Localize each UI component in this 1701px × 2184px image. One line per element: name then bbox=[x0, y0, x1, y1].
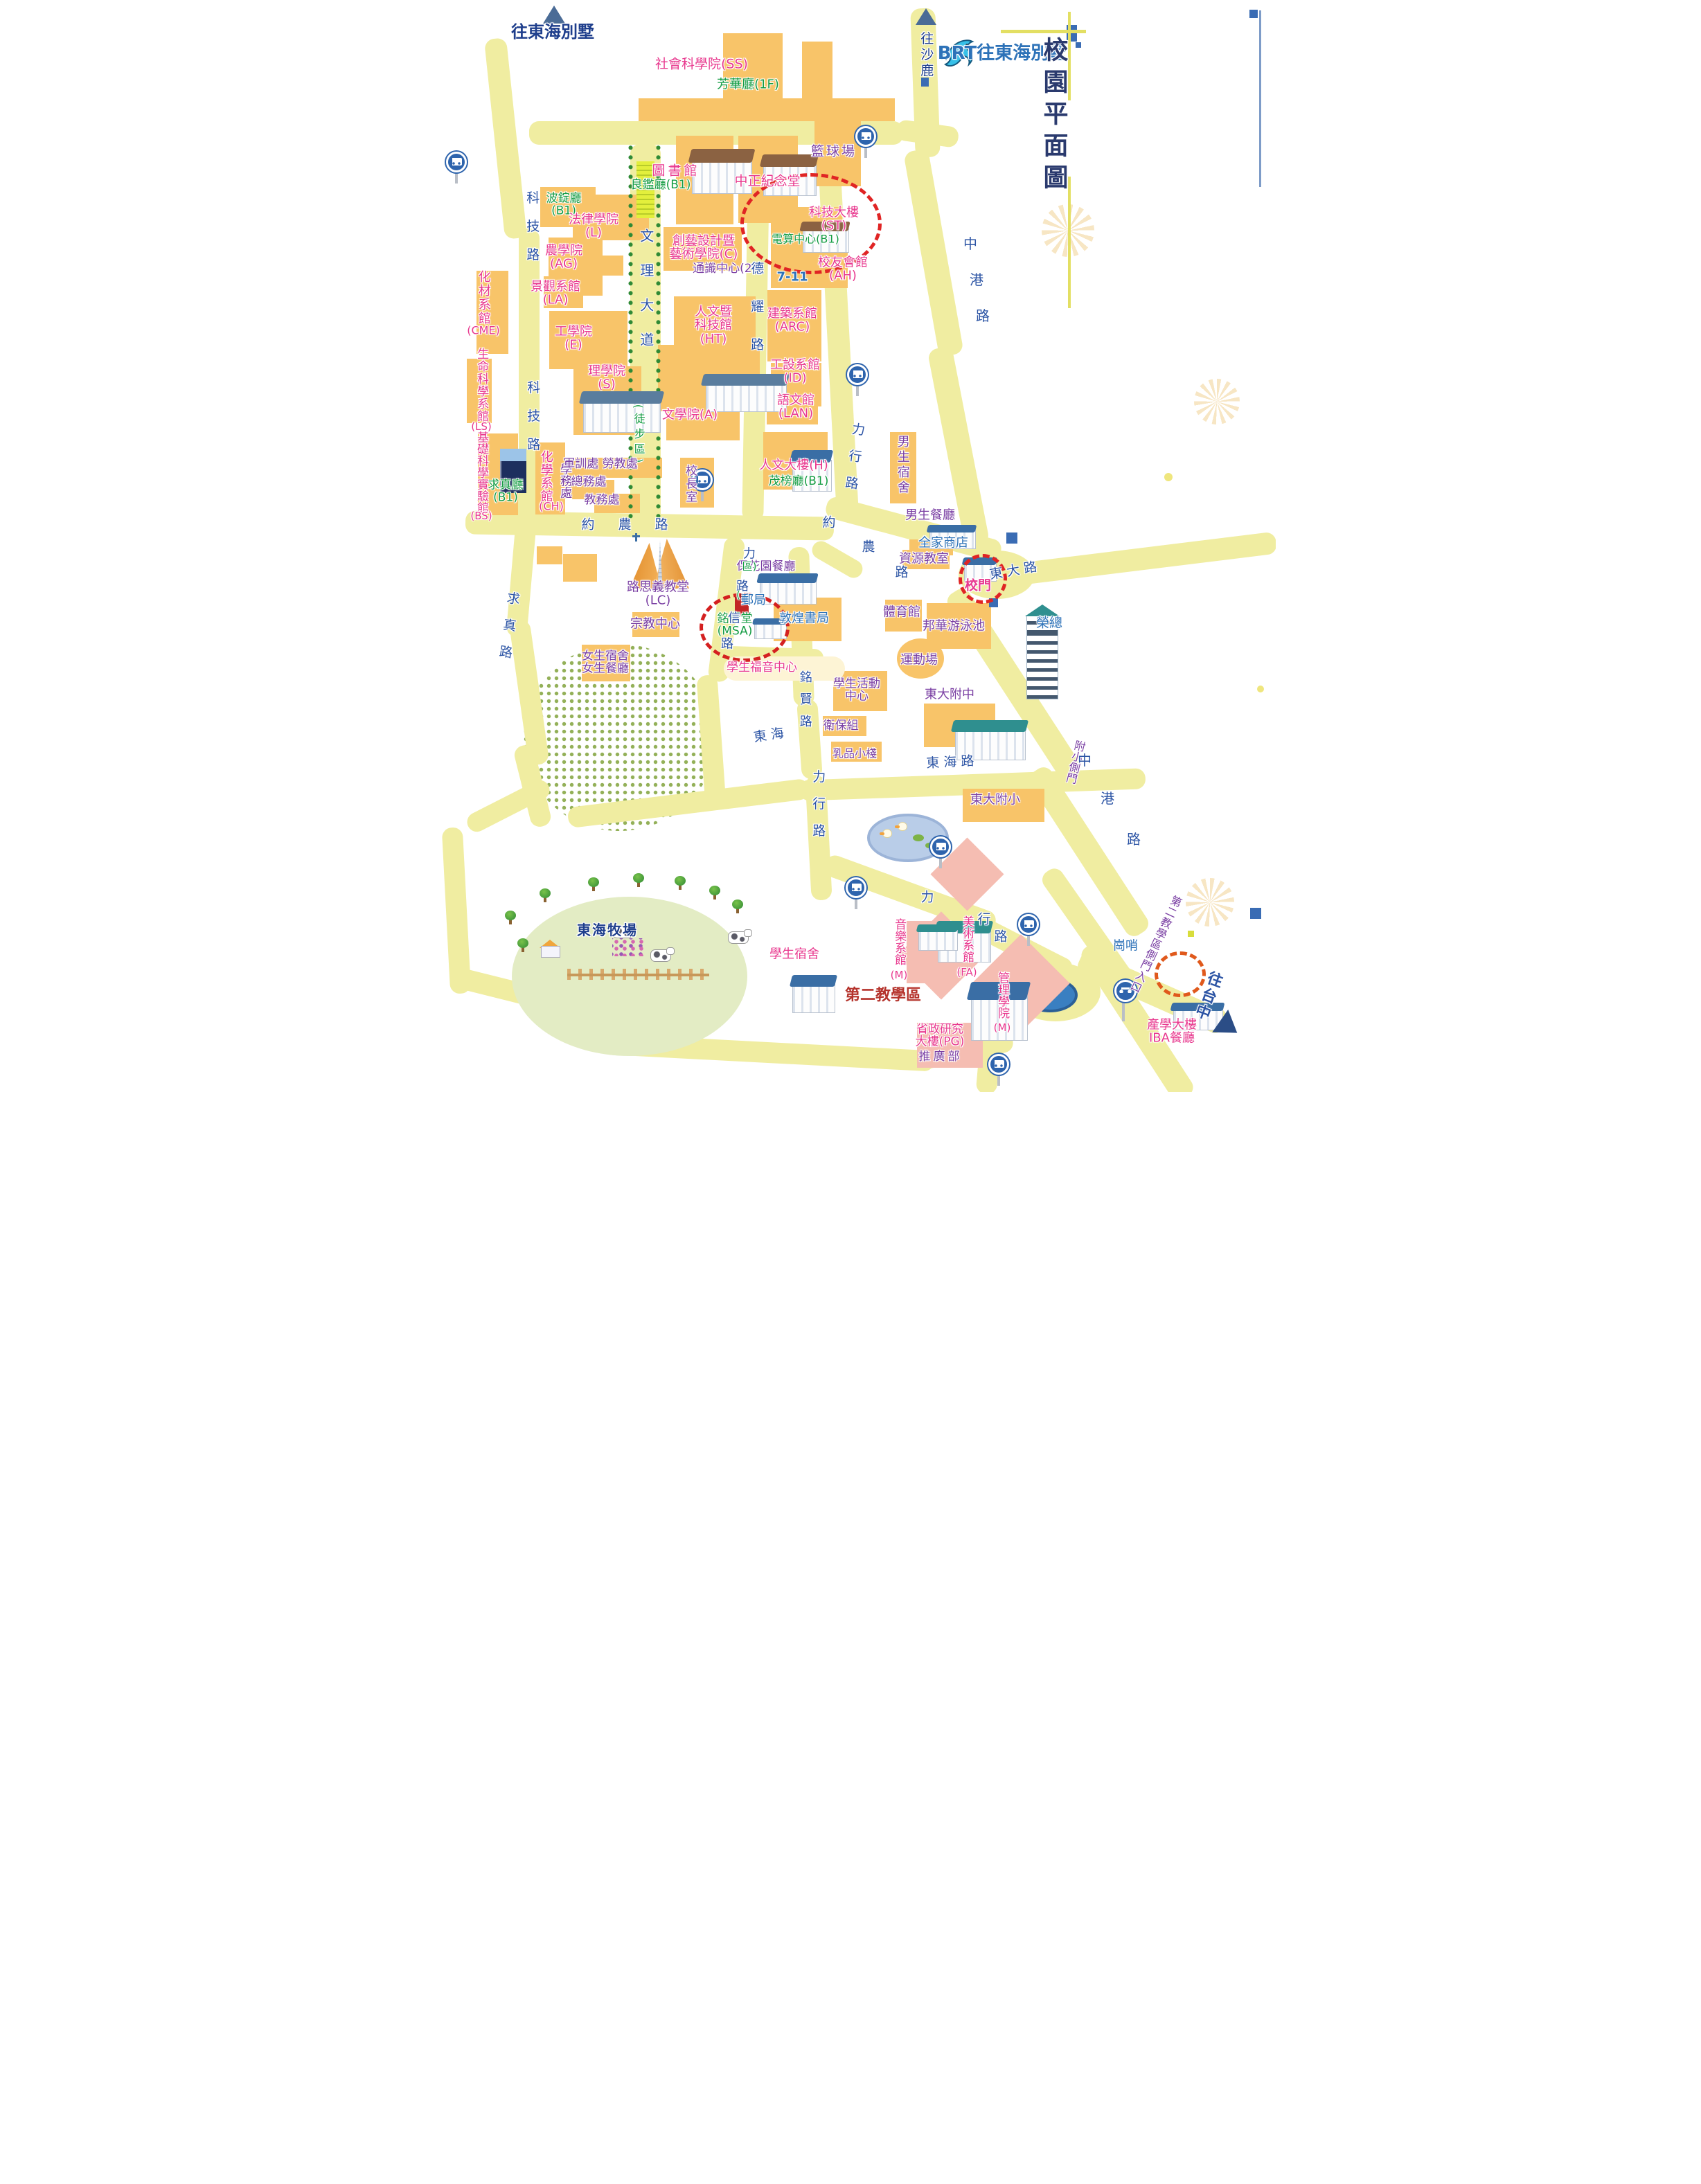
architecture-dept: 建築系館 (ARC) bbox=[767, 307, 817, 334]
wenli-avenue: 文理大道 bbox=[638, 229, 653, 367]
farm-tree bbox=[505, 911, 516, 924]
zhonggang-top-3: 路 bbox=[976, 309, 990, 324]
seven-eleven: 7-11 bbox=[776, 270, 808, 283]
sports-field: 運動場 bbox=[900, 653, 938, 666]
science-tech-bldg: 科技大樓 (ST) bbox=[809, 206, 859, 233]
ch-code: (CH) bbox=[539, 500, 564, 512]
decorative-square bbox=[1250, 908, 1261, 919]
campus-map: 往東海別墅社會科學院(SS)芳華廳(1F)圖書館良鑑廳(B1)中正紀念堂籃球場波… bbox=[425, 0, 1276, 1092]
provincial-research-bldg: 省政研究 大樓(PG) bbox=[916, 1023, 965, 1049]
zhonggang-top-2: 港 bbox=[970, 273, 983, 288]
decorative-square bbox=[1259, 10, 1261, 187]
farm-tree bbox=[709, 886, 720, 899]
baohuayuan-bldg-roof bbox=[756, 573, 819, 583]
farm-tree bbox=[633, 873, 644, 887]
mingxian-rd: 銘賢路 bbox=[798, 670, 811, 737]
lixing-se-2: 行 bbox=[977, 913, 990, 927]
farm-tree bbox=[517, 938, 528, 952]
basic-science-lab: 基礎科學實驗館 bbox=[475, 431, 488, 514]
gymnasium: 體育館 bbox=[883, 605, 920, 618]
yuenong-rd: 約 農 路 bbox=[581, 518, 677, 532]
management-code: (M) bbox=[994, 1022, 1011, 1033]
highlight-side-gate-entrance bbox=[1155, 951, 1206, 997]
bus-stop-sign bbox=[930, 836, 951, 857]
lily-pad bbox=[913, 834, 924, 841]
president-office: 校長室 bbox=[684, 465, 696, 504]
veterans-hospital: 榮總 bbox=[1036, 616, 1062, 631]
guard-post: 崗哨 bbox=[1113, 939, 1138, 952]
male-cafeteria: 男生餐廳 bbox=[905, 508, 955, 521]
keji-rd-north: 科技路 bbox=[525, 191, 540, 276]
gospel-center: 學生福音中心 bbox=[727, 661, 797, 674]
student-dorm-bldg bbox=[792, 975, 834, 1013]
fine-arts-dept: 美術系館 bbox=[961, 915, 973, 963]
cme-dept: 化材系館 bbox=[477, 270, 490, 325]
cks-memorial-bldg-roof bbox=[760, 154, 819, 167]
alumni-house: 校友會館 (AH) bbox=[818, 256, 868, 283]
keji-rd-south: 科技路 bbox=[526, 381, 540, 466]
bus-stop-icon bbox=[448, 152, 465, 185]
bus-stop-sign bbox=[846, 877, 866, 898]
school-gate: 校門 bbox=[965, 579, 991, 593]
decorative-square bbox=[1188, 931, 1194, 937]
farm-tree bbox=[588, 877, 599, 891]
donghai-rd-west: 東 海 bbox=[753, 726, 785, 744]
yuenong-diag-2: 農 bbox=[862, 540, 875, 555]
fine-arts-code: (FA) bbox=[956, 967, 977, 978]
dongda-elementary: 東大附小 bbox=[970, 793, 1020, 806]
student-dorm-south: 學生宿舍 bbox=[769, 947, 819, 960]
donghai-rd-east: 東 海 路 bbox=[926, 754, 974, 771]
bus-stop-icon bbox=[932, 836, 949, 870]
duck-icon bbox=[882, 829, 892, 838]
lixing-se-3: 路 bbox=[994, 930, 1007, 945]
bs-code: (BS) bbox=[470, 510, 492, 521]
to-shalu: 往沙鹿 bbox=[919, 32, 934, 80]
milk-stand: 乳品小棧 bbox=[832, 747, 877, 759]
dunhuang-bookstore: 敦煌書局 bbox=[779, 611, 829, 625]
health-care-group: 衛保組 bbox=[823, 719, 859, 732]
lixing-rd-south: 力行路 bbox=[811, 770, 826, 851]
yuenong-diag-1: 約 bbox=[822, 516, 835, 530]
bus-stop-icon bbox=[1020, 914, 1037, 947]
farm-fence bbox=[567, 969, 709, 980]
military-labor-office: 軍訓處 勞教處 bbox=[563, 458, 637, 470]
dongda-hs-bldg-roof bbox=[951, 720, 1028, 732]
landscape-dept: 景觀系館 (LA) bbox=[531, 280, 580, 307]
resource-room: 資源教室 bbox=[899, 552, 949, 565]
building-block bbox=[602, 256, 623, 276]
fine-arts-bldg bbox=[918, 924, 956, 951]
science-college-bldg bbox=[583, 391, 659, 433]
creative-arts-college: 創藝設計暨 藝術學院(C) bbox=[670, 235, 738, 262]
building-block bbox=[537, 546, 562, 564]
decorative-square bbox=[1006, 532, 1017, 544]
science-college: 理學院 (S) bbox=[588, 365, 625, 392]
road-zhonggang-1 bbox=[903, 148, 964, 357]
general-affairs-office: 總務處 bbox=[571, 476, 607, 488]
cow bbox=[728, 931, 749, 944]
fork-char-paren: ( bbox=[736, 589, 740, 600]
life-science-dept: 生命科學系館 bbox=[475, 348, 488, 422]
farm-tree bbox=[675, 876, 686, 890]
religion-center: 宗教中心 bbox=[630, 617, 680, 630]
zhonggang-s-1: 中 bbox=[1078, 753, 1092, 769]
fork-char-xin: 信 bbox=[728, 611, 740, 625]
language-bldg: 語文館 (LAN) bbox=[777, 394, 814, 421]
soc-sci-college: 社會科學院(SS) bbox=[655, 57, 748, 72]
building-block bbox=[639, 98, 895, 121]
library-label: 圖書館 bbox=[652, 164, 700, 179]
family-mart: 全家商店 bbox=[918, 536, 968, 549]
farm-tree bbox=[732, 899, 743, 913]
female-dorm-cafeteria: 女生宿舍 女生餐廳 bbox=[582, 650, 629, 676]
bus-stop-sign bbox=[1018, 914, 1039, 935]
student-dorm-bldg-roof bbox=[789, 975, 837, 987]
bus-stop-sign bbox=[847, 364, 868, 385]
science-college-bldg-body bbox=[583, 401, 661, 433]
building-block bbox=[802, 42, 832, 100]
student-activity-center: 學生活動 中心 bbox=[833, 678, 880, 704]
arts-college-bldg-body bbox=[706, 382, 787, 412]
management-college: 管理學院 bbox=[996, 972, 1008, 1019]
cks-memorial: 中正紀念堂 bbox=[734, 174, 800, 189]
flower-patch bbox=[612, 938, 647, 956]
decorative-dot bbox=[1257, 686, 1264, 692]
music-code: (M) bbox=[891, 969, 908, 981]
academic-affairs-office: 教務處 bbox=[585, 494, 620, 506]
male-cafeteria-bldg-roof bbox=[927, 525, 977, 532]
wenli-avenue-trees-right bbox=[656, 144, 661, 523]
luce-chapel: 路思義教堂 (LC) bbox=[627, 581, 689, 608]
zhonggang-s-3: 路 bbox=[1127, 832, 1141, 848]
engineering-college: 工學院 (E) bbox=[555, 325, 592, 352]
bus-stop-icon bbox=[857, 126, 874, 159]
qiuzhen-hall: 求真廳 (B1) bbox=[488, 479, 524, 505]
donghai-farm: 東海牧場 bbox=[577, 923, 638, 938]
decorative-swirl bbox=[1186, 878, 1234, 927]
decorative-swirl bbox=[1194, 379, 1240, 424]
law-college: 法律學院 (L) bbox=[569, 213, 618, 240]
liangjian-hall: 良鑑廳(B1) bbox=[631, 179, 691, 191]
fork-char-lu2: 路 bbox=[721, 637, 733, 650]
decorative-square bbox=[1068, 177, 1071, 308]
duck-icon bbox=[898, 822, 907, 831]
maobang-hall: 茂榜廳(B1) bbox=[769, 475, 829, 487]
male-dorm: 男生宿舍 bbox=[896, 435, 909, 496]
decorative-square bbox=[1249, 10, 1258, 18]
student-dorm-bldg-body bbox=[792, 983, 835, 1013]
extension-dept: 推廣部 bbox=[919, 1050, 963, 1063]
north-arrow-left bbox=[543, 6, 565, 24]
decorative-square bbox=[1068, 12, 1071, 100]
bus-stop-icon bbox=[849, 364, 866, 397]
yuenong-diag-3: 路 bbox=[895, 566, 908, 580]
road-nw-north bbox=[484, 37, 527, 240]
farm-house bbox=[540, 940, 560, 958]
basketball-court: 籃球場 bbox=[811, 145, 857, 159]
arts-college: 文學院(A) bbox=[662, 408, 718, 421]
lixing-se-1: 力 bbox=[920, 890, 934, 905]
bus-stop-sign bbox=[446, 152, 467, 172]
fork-char-qu: 區) bbox=[742, 561, 757, 572]
zhonggang-s-2: 港 bbox=[1101, 791, 1114, 807]
building-block bbox=[563, 554, 597, 582]
bus-stop-sign bbox=[855, 126, 876, 147]
bus-stop-icon bbox=[848, 877, 864, 911]
bus-stop-sign bbox=[988, 1054, 1009, 1075]
farm-tree bbox=[540, 888, 551, 902]
donghai-farm-area bbox=[512, 897, 747, 1056]
decorative-square bbox=[1001, 30, 1086, 33]
humanities-tech-bldg: 人文暨 科技館 (HT) bbox=[695, 305, 732, 346]
second-teaching-area: 第二教學區 bbox=[845, 987, 921, 1004]
industry-academy-bldg: 產學大樓 IBA餐廳 bbox=[1147, 1019, 1197, 1046]
music-dept: 音樂系館 bbox=[893, 918, 905, 965]
industrial-design-dept: 工設系館 (ID) bbox=[770, 359, 820, 386]
cme-code: (CME) bbox=[467, 324, 500, 336]
dongda-high-school: 東大附中 bbox=[925, 688, 974, 701]
to-donghai-villa: 往東海別墅 bbox=[511, 24, 594, 42]
post-office: 郵局 bbox=[741, 593, 766, 607]
road-dongda bbox=[1020, 532, 1276, 585]
banghua-pool: 邦華游泳池 bbox=[923, 619, 985, 632]
cow bbox=[650, 949, 671, 962]
fork-char-li: 力 bbox=[743, 547, 756, 560]
agriculture-college: 農學院 (AG) bbox=[545, 244, 582, 271]
humanities-bldg: 人文大樓(H) bbox=[759, 458, 828, 472]
map-title: 校園平面圖 bbox=[1040, 37, 1067, 196]
fanghua-hall: 芳華廳(1F) bbox=[717, 78, 779, 91]
chemistry-dept: 化學系館 bbox=[539, 450, 552, 503]
computer-center: 電算中心(B1) bbox=[772, 233, 839, 244]
library-bldg-roof bbox=[688, 149, 755, 163]
deyao-rd: 德耀路 bbox=[749, 262, 764, 376]
science-college-bldg-roof bbox=[578, 391, 664, 404]
bus-stop-icon bbox=[990, 1054, 1007, 1087]
north-arrow-right bbox=[916, 8, 936, 25]
decorative-square bbox=[1076, 42, 1081, 48]
decorative-dot bbox=[1164, 473, 1173, 481]
zhonggang-top-1: 中 bbox=[963, 237, 977, 252]
fine-arts-bldg-body bbox=[918, 930, 958, 951]
fine-arts-bldg-roof bbox=[916, 924, 959, 932]
